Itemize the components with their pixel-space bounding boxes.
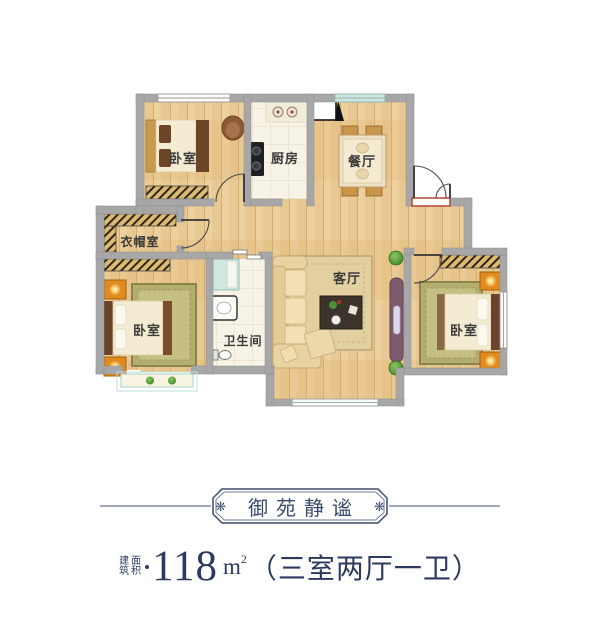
window: [292, 399, 378, 406]
toilet-icon: [219, 351, 231, 360]
rosette-icon: ❋: [215, 500, 226, 513]
fridge-icon: [312, 100, 336, 120]
entrance-threshold: [412, 198, 450, 206]
window: [500, 292, 507, 348]
table-plate: [332, 316, 341, 325]
bay-window: [117, 372, 197, 391]
burner: [253, 162, 261, 170]
room-label-bathroom: 卫生间: [223, 333, 262, 348]
wall: [406, 94, 414, 206]
wall: [307, 94, 314, 206]
area-unit-base: m: [223, 554, 241, 579]
sink-dot: [291, 111, 294, 114]
wall: [244, 94, 251, 206]
sofa-cushion: [285, 298, 306, 324]
bed-footboard: [437, 294, 445, 350]
lamp-icon: [109, 284, 121, 296]
bed-headboard: [104, 301, 113, 355]
basin: [217, 302, 231, 314]
area-label-col2: 面积: [131, 557, 142, 578]
wardrobe-hatch-icon: [104, 214, 176, 226]
wall: [191, 366, 274, 374]
area-unit-sup: 2: [241, 552, 247, 566]
project-title: 御苑静谧: [240, 492, 360, 521]
wood-floor-entry: [406, 202, 466, 250]
bedroom-right-furniture: [420, 272, 501, 370]
pillow: [477, 324, 488, 346]
sink-dot: [277, 111, 280, 114]
rosette-icon: ❋: [374, 500, 385, 513]
pillow: [115, 305, 126, 325]
bed-footboard: [196, 120, 209, 172]
area-spec: （三室两厅一卫）: [249, 547, 481, 587]
area-info-line: 建筑 面积 118 m2 （三室两厅一卫）: [0, 541, 600, 593]
wall: [404, 248, 414, 255]
wall: [442, 248, 507, 255]
area-unit: m2: [223, 554, 247, 580]
wardrobe-hatch-icon: [104, 259, 170, 271]
title-row: ❋ 御苑静谧 ❋: [0, 486, 600, 526]
shower-tray: [227, 261, 237, 288]
plant-icon: [389, 251, 403, 265]
bed-headboard: [146, 120, 156, 172]
room-label-bedroom-top-left: 卧室: [169, 151, 197, 166]
armchair-cushion: [226, 122, 240, 138]
wardrobe-hatch-icon: [104, 226, 116, 252]
wall: [206, 259, 213, 374]
project-title-band: ❋ 御苑静谧 ❋: [0, 486, 600, 526]
room-label-dining: 餐厅: [347, 154, 376, 169]
tv-screen: [394, 306, 401, 334]
wall: [96, 252, 213, 259]
wood-floor-balcony: [270, 368, 400, 403]
floorplan-page: 卧室 厨房 餐厅 衣帽室 卧室 卫生间 客厅 卧室 ❋ 御苑静谧 ❋ 建筑 面积: [0, 0, 600, 615]
room-label-kitchen: 厨房: [271, 151, 299, 166]
wall: [265, 259, 272, 374]
wardrobe-hatch-icon: [440, 255, 502, 268]
area-label: 建筑 面积: [119, 557, 142, 578]
pillow: [159, 125, 171, 143]
room-label-bedroom-left: 卧室: [133, 323, 161, 338]
separator-dot-icon: [145, 565, 149, 569]
table-decor: [357, 169, 369, 179]
room-label-living: 客厅: [333, 271, 361, 286]
window: [335, 94, 385, 102]
wall: [378, 399, 404, 406]
area-value: 118: [152, 547, 218, 587]
table-decor: [357, 143, 369, 153]
sofa-cushion: [285, 270, 306, 296]
plant-icon: [168, 377, 176, 385]
room-label-bedroom-right: 卧室: [450, 323, 478, 338]
table-plant: [329, 301, 337, 309]
wall: [464, 198, 472, 256]
toilet-tank: [213, 350, 218, 360]
wall: [96, 206, 104, 374]
pillow: [477, 298, 488, 320]
burner: [253, 147, 261, 155]
window: [158, 94, 230, 102]
plant-icon: [146, 377, 154, 385]
lamp-icon: [485, 275, 497, 287]
wall: [206, 252, 233, 259]
pillow: [115, 329, 126, 349]
wall: [404, 255, 411, 368]
wall: [404, 368, 507, 375]
table-flower: [337, 300, 341, 304]
bed-footboard: [163, 301, 172, 355]
entry-door-arc: [414, 166, 450, 198]
wall: [136, 199, 214, 206]
wall: [136, 94, 144, 214]
lamp-icon: [485, 355, 497, 367]
bed-headboard: [491, 294, 500, 350]
wardrobe-hatch-icon: [146, 186, 208, 199]
area-label-col1: 建筑: [119, 557, 130, 578]
room-label-cloakroom: 衣帽室: [120, 234, 159, 249]
